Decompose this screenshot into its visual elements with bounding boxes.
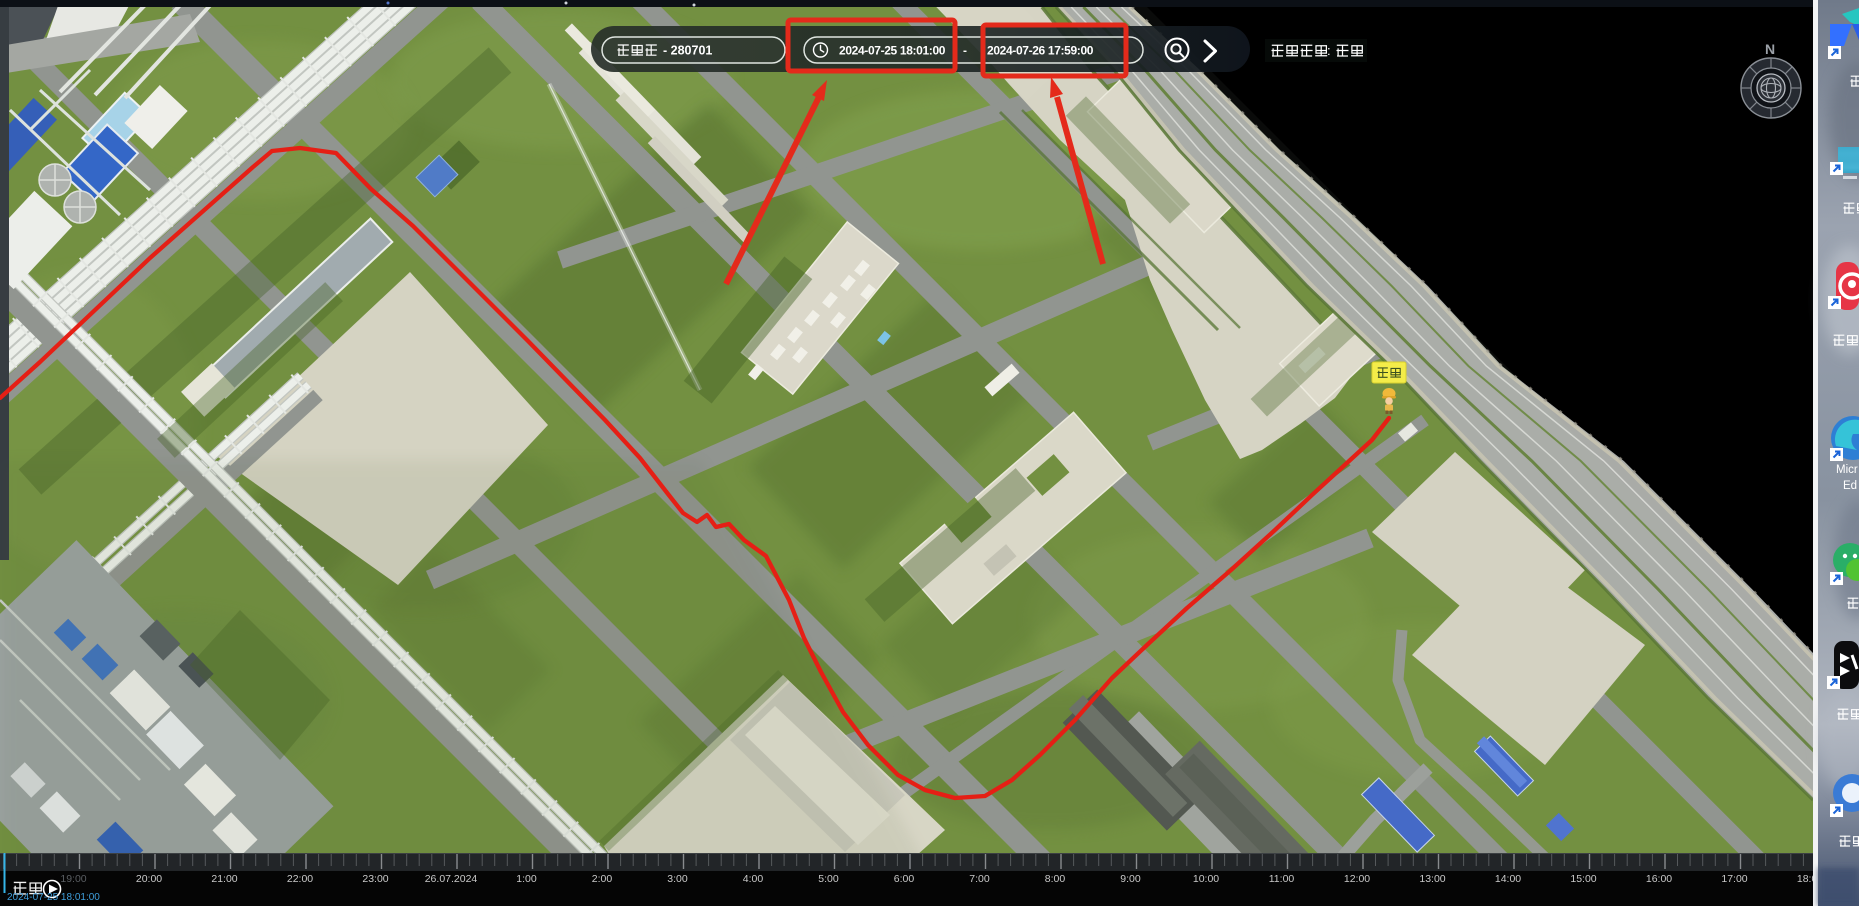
svg-text:7:00: 7:00	[969, 873, 990, 885]
svg-text::: :	[1327, 43, 1331, 58]
svg-text:16:00: 16:00	[1646, 873, 1672, 885]
svg-text:2024-07-25 18:01:00: 2024-07-25 18:01:00	[839, 44, 946, 58]
svg-text:23:00: 23:00	[362, 873, 388, 885]
svg-text:11:00: 11:00	[1269, 873, 1295, 885]
svg-text:6:00: 6:00	[894, 873, 915, 885]
svg-text:15:00: 15:00	[1570, 873, 1596, 885]
svg-text:8:00: 8:00	[1045, 873, 1066, 885]
svg-text:21:00: 21:00	[211, 873, 237, 885]
svg-text:4:00: 4:00	[743, 873, 764, 885]
svg-text:2024-07-26 17:59:00: 2024-07-26 17:59:00	[987, 44, 1094, 58]
svg-text:26.07.2024: 26.07.2024	[425, 873, 478, 885]
svg-text:19:00: 19:00	[60, 873, 86, 885]
svg-text:-: -	[963, 44, 967, 58]
svg-text:20:00: 20:00	[136, 873, 162, 885]
svg-text:12:00: 12:00	[1344, 873, 1370, 885]
svg-text:2:00: 2:00	[592, 873, 613, 885]
svg-text:N: N	[1765, 41, 1775, 57]
svg-text:- 280701: - 280701	[663, 44, 712, 58]
svg-text:9:00: 9:00	[1120, 873, 1141, 885]
svg-text:13:00: 13:00	[1419, 873, 1445, 885]
svg-text:22:00: 22:00	[287, 873, 313, 885]
svg-text:Micr: Micr	[1836, 464, 1858, 476]
svg-text:5:00: 5:00	[818, 873, 839, 885]
svg-text:2024-07-25 18:01:00: 2024-07-25 18:01:00	[7, 892, 100, 903]
svg-text:10:00: 10:00	[1193, 873, 1219, 885]
svg-text:3:00: 3:00	[667, 873, 688, 885]
svg-text:1:00: 1:00	[516, 873, 537, 885]
svg-text:17:00: 17:00	[1721, 873, 1747, 885]
svg-text:Ed: Ed	[1843, 480, 1857, 492]
svg-text:14:00: 14:00	[1495, 873, 1521, 885]
